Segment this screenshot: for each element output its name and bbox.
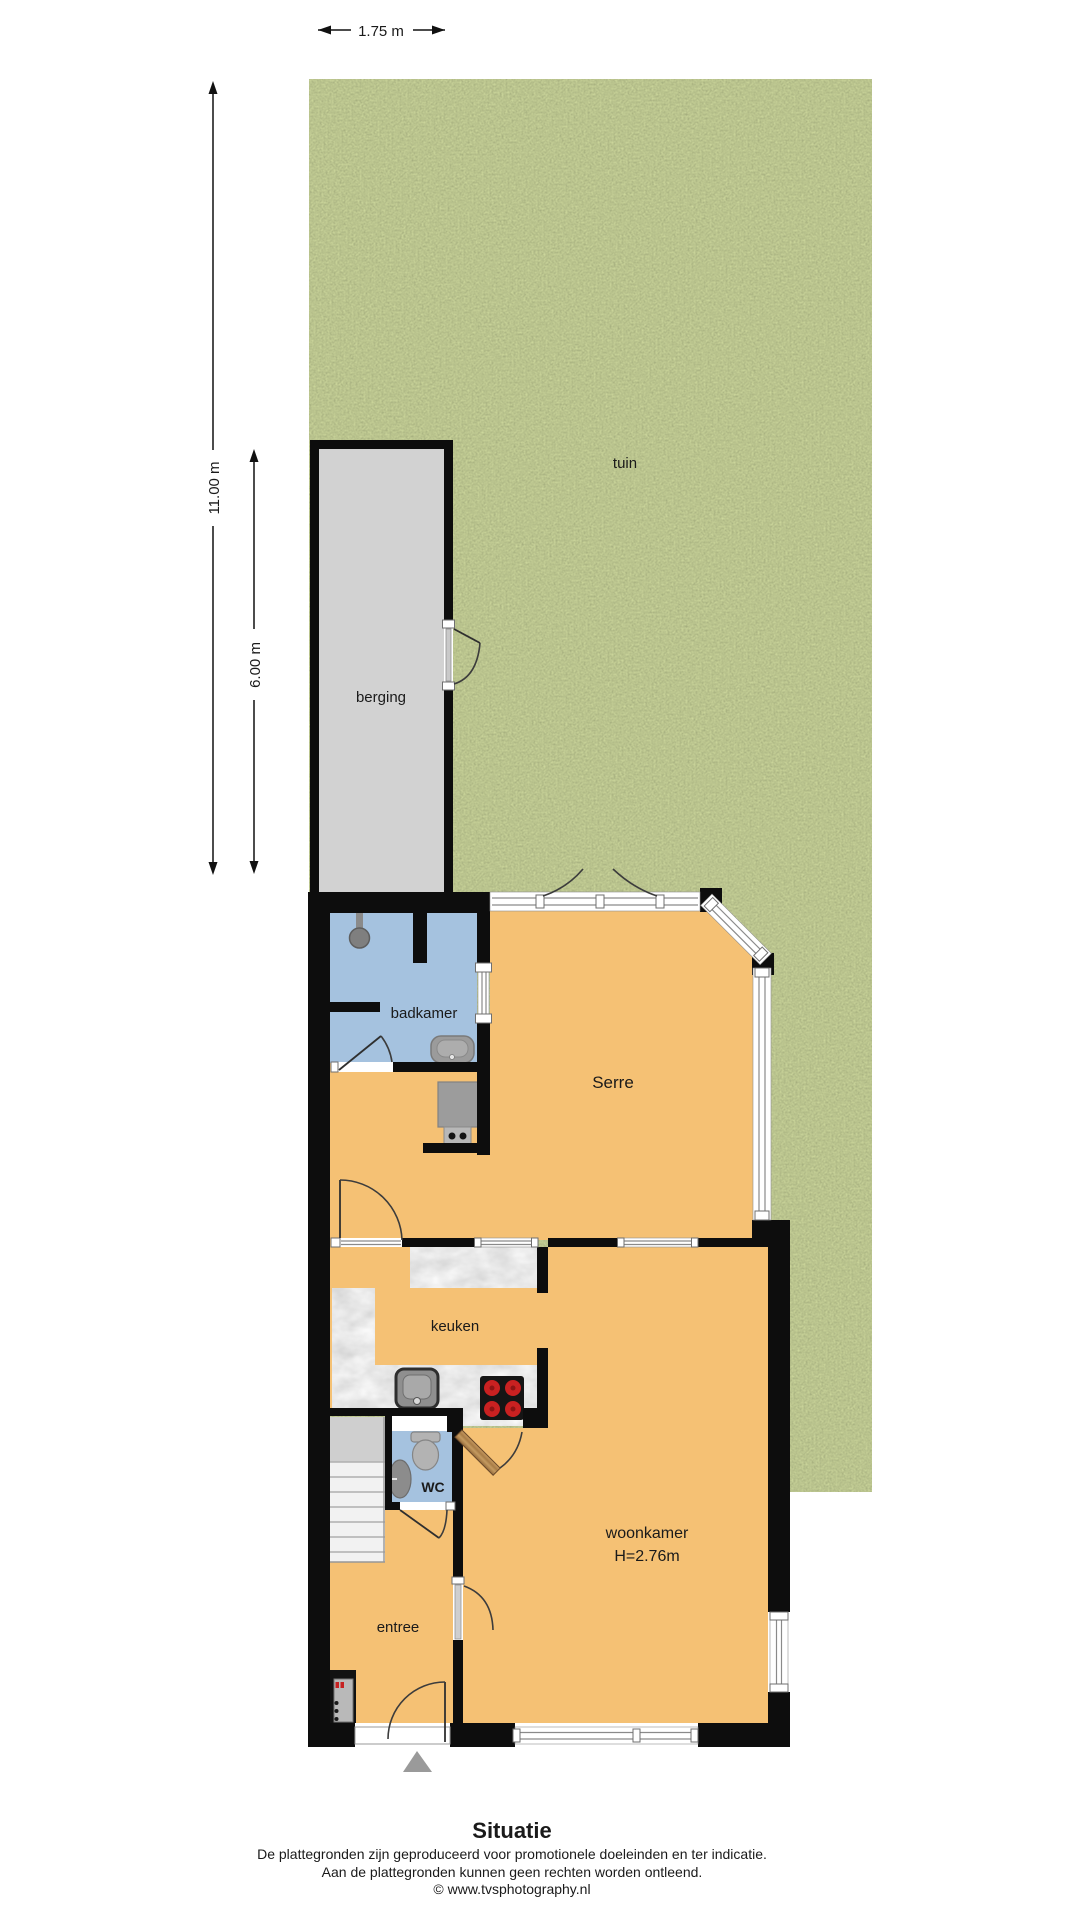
disclaimer-line-1: De plattegronden zijn geproduceerd voor … [257, 1846, 767, 1862]
room-label-entree: entree [377, 1619, 420, 1636]
toilet-icon [411, 1432, 440, 1470]
page-title: Situatie [472, 1818, 551, 1843]
floorplan-canvas: tuin 1.75 m 11.00 m 6.00 m [0, 0, 1080, 1920]
dimension-label-total-depth: 11.00 m [206, 461, 223, 514]
room-label-badkamer: badkamer [391, 1005, 458, 1022]
disclaimer-line-2: Aan de plattegronden kunnen geen rechten… [322, 1864, 703, 1880]
serre-right-window [753, 968, 771, 1220]
credit-line: © www.tvsphotography.nl [433, 1881, 590, 1897]
room-label-berging: berging [356, 689, 406, 706]
room-label-tuin: tuin [613, 455, 637, 472]
dimension-top-width: 1.75 m [318, 23, 445, 40]
dimension-label-berging-depth: 6.00 m [247, 642, 264, 688]
badkamer-serre-window [476, 963, 492, 1023]
wc-room: WC [389, 1416, 452, 1502]
room-label-serre: Serre [592, 1073, 634, 1092]
kitchen-sink-icon [396, 1369, 438, 1408]
serre-floor [490, 898, 766, 1240]
floorplan-page: tuin 1.75 m 11.00 m 6.00 m [0, 0, 1080, 1920]
bathroom-sink-icon [431, 1036, 474, 1063]
stove-icon [480, 1376, 524, 1420]
entrance-marker-icon [403, 1751, 432, 1772]
dimension-label-width: 1.75 m [358, 23, 404, 40]
woonkamer-front-window [513, 1727, 698, 1744]
room-label-keuken: keuken [431, 1318, 479, 1335]
footer: Situatie De plattegronden zijn geproduce… [257, 1818, 767, 1897]
serre-woonkamer-window [618, 1238, 699, 1247]
dimension-berging-depth: 6.00 m [247, 449, 264, 874]
meter-cabinet-icon [330, 1670, 356, 1730]
woonkamer-right-window [770, 1612, 788, 1692]
staircase [330, 1417, 385, 1562]
serre-opening-floor [477, 1155, 490, 1240]
room-label-wc: WC [421, 1479, 444, 1495]
room-label-woonkamer-height: H=2.76m [614, 1548, 679, 1565]
serre-keuken-window [475, 1238, 539, 1247]
dimension-total-depth: 11.00 m [206, 81, 223, 875]
wc-sink-icon [389, 1460, 411, 1498]
room-label-woonkamer: woonkamer [605, 1525, 689, 1542]
